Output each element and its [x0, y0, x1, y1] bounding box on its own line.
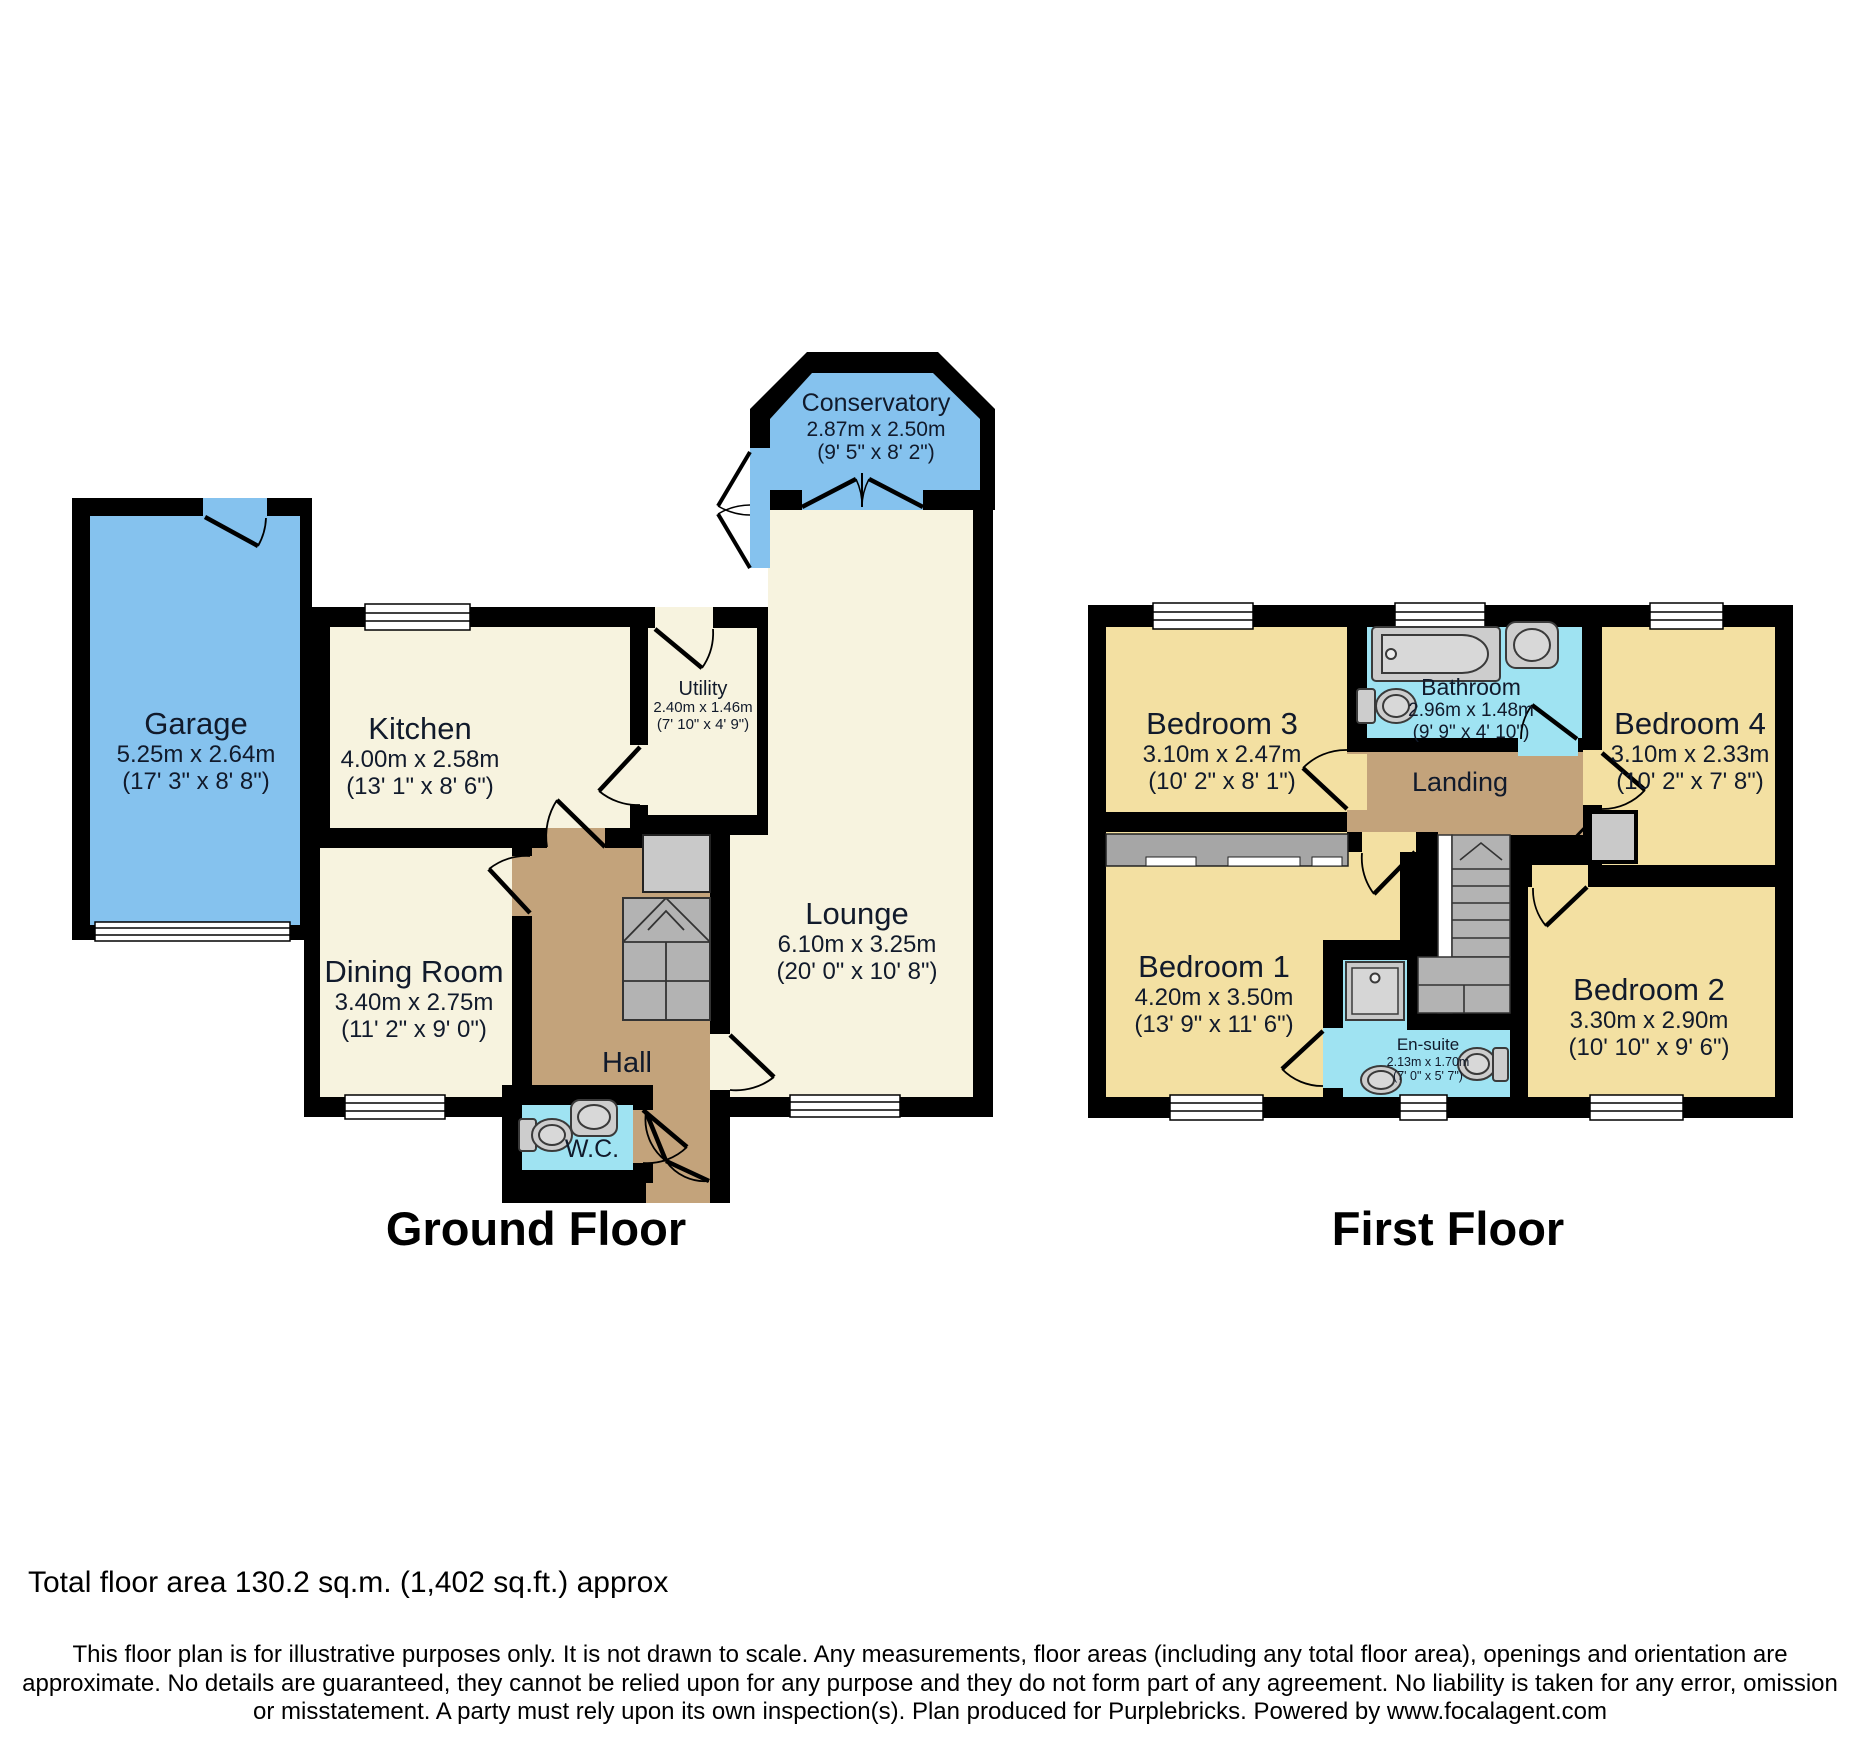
door-gap — [646, 1183, 710, 1203]
window-icon — [1400, 1095, 1447, 1120]
room-name: Utility — [653, 678, 752, 700]
window-icon — [365, 604, 470, 630]
window-icon — [1650, 603, 1723, 629]
room-name: Conservatory — [802, 390, 951, 418]
room-label-hall: Hall — [602, 1048, 652, 1080]
room-name: Bedroom 2 — [1569, 973, 1730, 1007]
room-dims-imperial: (17' 3" x 8' 8") — [117, 768, 276, 795]
room-dims-metric: 3.10m x 2.47m — [1143, 741, 1302, 768]
room-label-bedroom3: Bedroom 3 3.10m x 2.47m (10' 2" x 8' 1") — [1143, 707, 1302, 795]
door-gap — [1583, 750, 1603, 805]
room-dims-imperial: (11' 2" x 9' 0") — [324, 1016, 503, 1043]
sink-icon — [1506, 622, 1558, 668]
room-dims-imperial: (13' 9" x 11' 6") — [1134, 1011, 1293, 1038]
door-gap — [203, 498, 267, 517]
ground-floor-title: Ground Floor — [386, 1201, 686, 1256]
room-label-conservatory: Conservatory 2.87m x 2.50m (9' 5" x 8' 2… — [802, 390, 951, 465]
room-name: Bedroom 1 — [1134, 950, 1293, 984]
disclaimer-line: or misstatement. A party must rely upon … — [0, 1698, 1860, 1727]
toilet-icon — [1357, 689, 1416, 723]
room-name: Lounge — [777, 897, 938, 931]
french-door-icon — [718, 452, 750, 568]
room-dims-metric: 4.00m x 2.58m — [341, 746, 500, 773]
room-dims-metric: 3.40m x 2.75m — [324, 989, 503, 1016]
room-name: En-suite — [1387, 1036, 1470, 1055]
first-floor-title: First Floor — [1332, 1201, 1564, 1256]
room-name: Garage — [117, 707, 276, 741]
room-dims-imperial: (13' 1" x 8' 6") — [341, 773, 500, 800]
room-label-garage: Garage 5.25m x 2.64m (17' 3" x 8' 8") — [117, 707, 276, 795]
room-dims-metric: 2.96m x 1.48m — [1408, 700, 1534, 721]
window-icon — [95, 922, 290, 941]
door-gap — [1532, 865, 1588, 887]
room-label-wc: W.C. — [565, 1136, 619, 1164]
door-gap — [655, 607, 713, 628]
room-name: Bedroom 3 — [1143, 707, 1302, 741]
sink-icon — [571, 1100, 617, 1136]
room-dims-imperial: (9' 9" x 4' 10") — [1408, 722, 1534, 743]
room-name: Bathroom — [1408, 675, 1534, 700]
room-name: Hall — [602, 1048, 652, 1080]
window-icon — [1590, 1095, 1683, 1120]
bath-icon — [1372, 627, 1500, 681]
stairs-icon — [623, 898, 710, 1020]
room-label-landing: Landing — [1412, 768, 1508, 798]
room-label-bathroom: Bathroom 2.96m x 1.48m (9' 9" x 4' 10") — [1408, 675, 1534, 743]
room-label-dining-room: Dining Room 3.40m x 2.75m (11' 2" x 9' 0… — [324, 955, 503, 1043]
room-name: Dining Room — [324, 955, 503, 989]
room-dims-metric: 4.20m x 3.50m — [1134, 984, 1293, 1011]
room-dims-imperial: (20' 0" x 10' 8") — [777, 958, 938, 985]
room-dims-imperial: (10' 2" x 8' 1") — [1143, 768, 1302, 795]
room-dims-imperial: (7' 10" x 4' 9") — [653, 717, 752, 734]
room-name: W.C. — [565, 1136, 619, 1164]
total-floor-area: Total floor area 130.2 sq.m. (1,402 sq.f… — [28, 1566, 668, 1600]
room-dims-imperial: (7' 0" x 5' 7") — [1387, 1069, 1470, 1083]
disclaimer-line: approximate. No details are guaranteed, … — [0, 1670, 1860, 1699]
floorplan-page: Garage 5.25m x 2.64m (17' 3" x 8' 8") Ki… — [0, 0, 1860, 1745]
room-name: Bedroom 4 — [1611, 707, 1770, 741]
room-name: Kitchen — [341, 712, 500, 746]
room-dims-metric: 2.87m x 2.50m — [802, 418, 951, 442]
window-icon — [1153, 603, 1253, 629]
room-dims-metric: 2.40m x 1.46m — [653, 700, 752, 717]
door-gap — [1362, 832, 1416, 852]
room-dims-metric: 3.30m x 2.90m — [1569, 1007, 1730, 1034]
window-icon — [1395, 603, 1485, 629]
disclaimer-text: This floor plan is for illustrative purp… — [0, 1641, 1860, 1727]
room-label-kitchen: Kitchen 4.00m x 2.58m (13' 1" x 8' 6") — [341, 712, 500, 800]
window-icon — [345, 1095, 445, 1119]
wardrobe-icon — [1106, 834, 1348, 866]
disclaimer-line: This floor plan is for illustrative purp… — [0, 1641, 1860, 1670]
room-name: Landing — [1412, 768, 1508, 798]
room-dims-metric: 3.10m x 2.33m — [1611, 741, 1770, 768]
door-gap — [1347, 754, 1367, 810]
room-label-bedroom2: Bedroom 2 3.30m x 2.90m (10' 10" x 9' 6"… — [1569, 973, 1730, 1061]
room-dims-metric: 2.13m x 1.70m — [1387, 1055, 1470, 1069]
door-gap — [750, 448, 770, 568]
door-gap — [1323, 1028, 1343, 1088]
shower-icon — [1346, 962, 1404, 1020]
room-dims-metric: 5.25m x 2.64m — [117, 741, 276, 768]
door-gap — [710, 1034, 730, 1090]
understairs-cupboard — [643, 835, 710, 892]
window-icon — [790, 1095, 900, 1117]
window-icon — [1170, 1095, 1263, 1120]
room-dims-imperial: (10' 2" x 7' 8") — [1611, 768, 1770, 795]
room-dims-imperial: (10' 10" x 9' 6") — [1569, 1034, 1730, 1061]
room-label-bedroom1: Bedroom 1 4.20m x 3.50m (13' 9" x 11' 6"… — [1134, 950, 1293, 1038]
room-dims-imperial: (9' 5" x 8' 2") — [802, 441, 951, 465]
room-dims-metric: 6.10m x 3.25m — [777, 931, 938, 958]
room-label-lounge: Lounge 6.10m x 3.25m (20' 0" x 10' 8") — [777, 897, 938, 985]
room-label-bedroom4: Bedroom 4 3.10m x 2.33m (10' 2" x 7' 8") — [1611, 707, 1770, 795]
floorplan-drawing — [0, 0, 1860, 1745]
room-label-utility: Utility 2.40m x 1.46m (7' 10" x 4' 9") — [653, 678, 752, 734]
room-label-ensuite: En-suite 2.13m x 1.70m (7' 0" x 5' 7") — [1387, 1036, 1470, 1083]
